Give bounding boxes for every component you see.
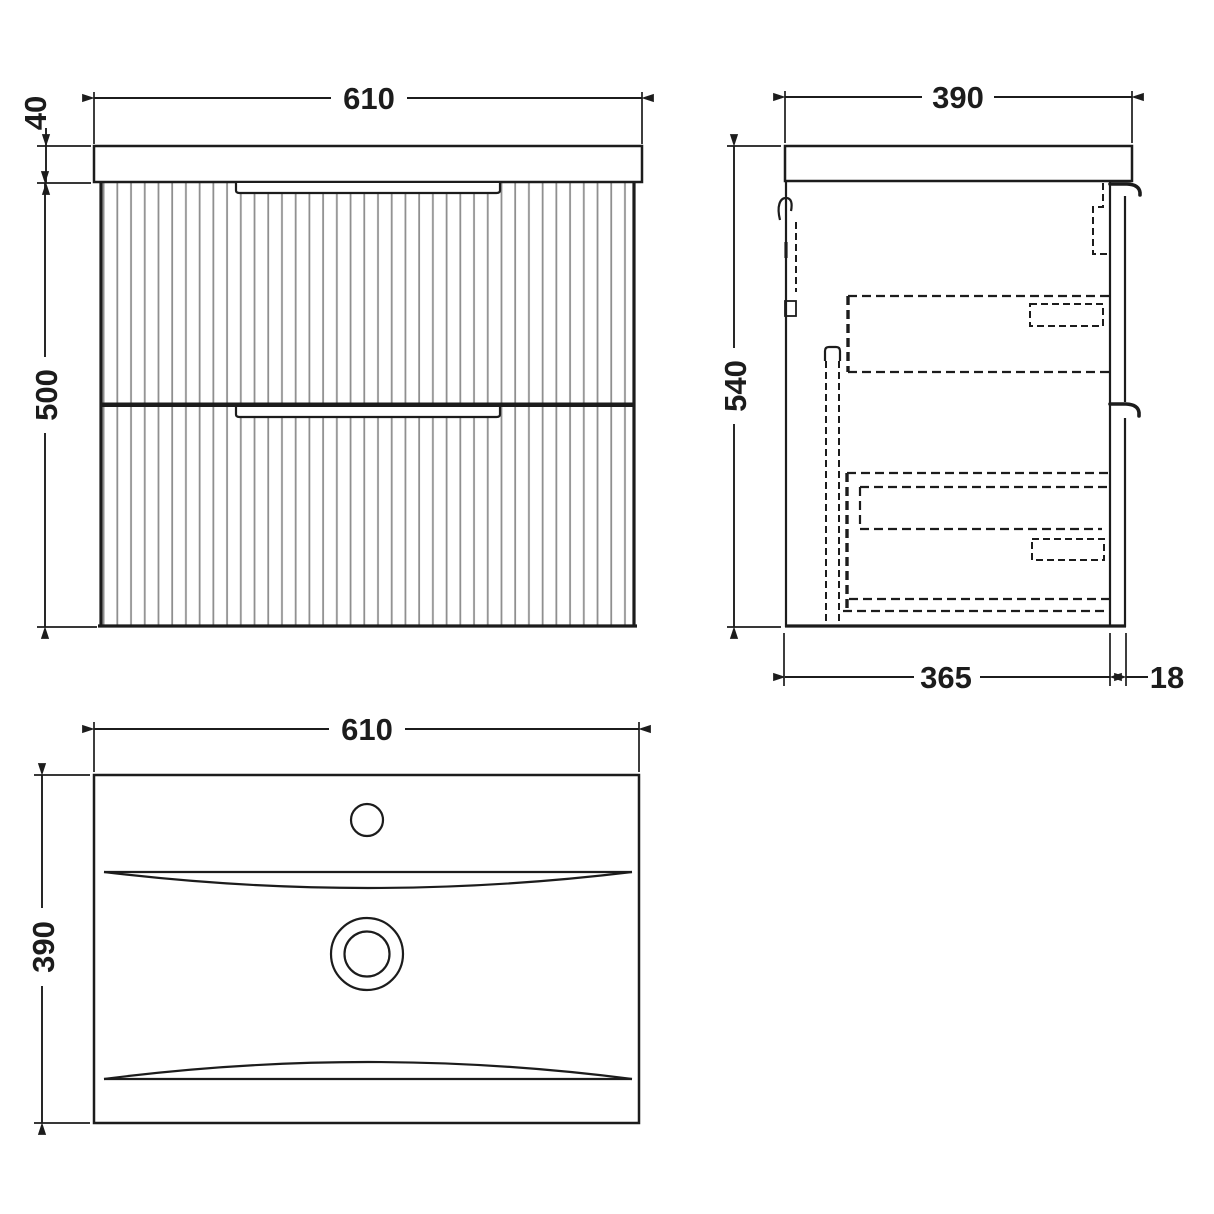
- dim-body-depth-label: 365: [920, 660, 972, 695]
- upper-drawer-runner: [1030, 304, 1103, 326]
- upper-drawer-fluted-front: [102, 183, 633, 403]
- upper-drawer-handle: [236, 183, 500, 193]
- lower-drawer-runner: [1032, 539, 1104, 560]
- side-worktop: [785, 146, 1132, 181]
- dimension-body-depth: 365: [784, 633, 1110, 695]
- vanity-unit-technical-drawing: 610 40 500: [0, 0, 1214, 1214]
- front-view: 610 40 500: [18, 81, 642, 627]
- technical-drawing-page: 610 40 500: [0, 0, 1214, 1214]
- dim-front-cabinet-height-label: 500: [29, 369, 64, 421]
- lower-drawer-handle: [236, 407, 500, 417]
- dim-front-width-label: 610: [343, 81, 395, 116]
- lower-drawer-fluted-front: [102, 406, 633, 626]
- wall-bracket: [779, 198, 796, 316]
- dim-plan-depth-label: 390: [26, 921, 61, 973]
- dim-worktop-thickness-label: 40: [18, 96, 53, 130]
- dimension-plan-depth: 390: [26, 775, 90, 1123]
- waste-pipe-cap: [825, 347, 840, 361]
- dimension-front-cabinet-height: 500: [29, 183, 97, 627]
- lower-drawer-hidden-box: [843, 473, 1109, 611]
- dimension-front-thickness: 18: [1126, 633, 1184, 695]
- upper-drawer-hidden-box: [848, 296, 1109, 372]
- waste-pipe: [825, 347, 840, 624]
- dim-side-depth-label: 390: [932, 80, 984, 115]
- dimension-plan-width: 610: [94, 712, 639, 772]
- dimension-worktop-thickness: 40: [18, 96, 91, 183]
- dim-front-thickness-label: 18: [1150, 660, 1184, 695]
- plan-view: 610 390: [26, 712, 639, 1123]
- dimension-side-height: 540: [718, 146, 781, 627]
- lower-handle-lip: [1110, 404, 1139, 416]
- side-view: 390 540 365 18: [718, 80, 1184, 695]
- dimension-front-width: 610: [94, 81, 642, 144]
- drawer-divider: [100, 403, 635, 408]
- upper-handle-lip: [1110, 184, 1140, 195]
- dimension-side-depth: 390: [785, 80, 1132, 143]
- dim-plan-width-label: 610: [341, 712, 393, 747]
- handle-recess-hidden-profile: [1093, 183, 1109, 254]
- dim-side-height-label: 540: [718, 360, 753, 412]
- front-worktop: [94, 146, 642, 182]
